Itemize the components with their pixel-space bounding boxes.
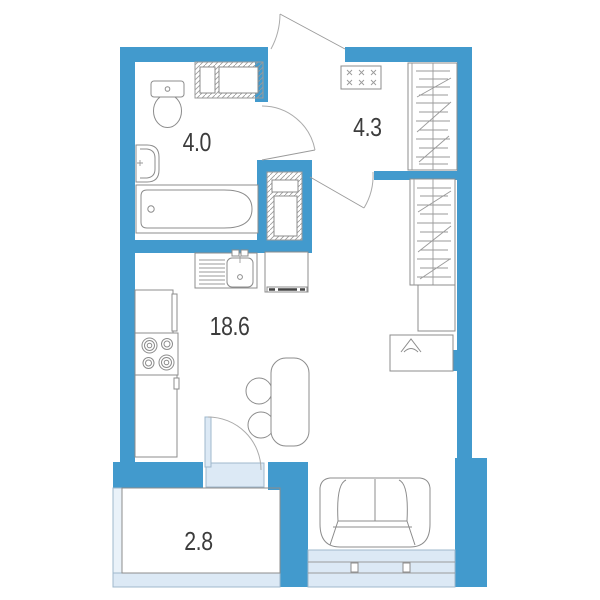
wall-left <box>120 47 135 462</box>
sofa-icon <box>320 478 430 547</box>
wall-shaft-top <box>257 160 312 172</box>
wall-balcony-left <box>113 462 203 488</box>
balcony-area: 2.8 <box>184 527 213 557</box>
hallway-wardrobe-icon <box>408 63 457 170</box>
living-room-door-icon <box>310 172 373 208</box>
stove-icon <box>135 333 178 375</box>
bathroom-door-icon <box>262 106 315 160</box>
room-label-bathroom: 4.0 <box>183 128 212 158</box>
balcony-glazing-left <box>113 488 122 573</box>
window-main <box>308 550 455 587</box>
wall-top-left <box>120 47 268 62</box>
wall-top-right <box>345 47 472 62</box>
kitchen-sink-icon <box>195 250 257 288</box>
chair-icon <box>248 412 274 438</box>
kitchen-counter-icon <box>135 375 179 457</box>
electrical-panel-icon <box>341 66 381 89</box>
window-mullion <box>351 563 358 572</box>
window-mullion <box>403 563 410 572</box>
bathroom-area: 4.0 <box>136 62 263 233</box>
room-label-living: 18.6 <box>210 312 250 342</box>
entrance-door-icon <box>271 14 345 49</box>
washbasin-icon <box>136 145 159 182</box>
living-wardrobe-icon <box>410 179 455 285</box>
room-label-balcony: 2.8 <box>184 527 213 557</box>
ventilation-shaft-icon <box>195 62 263 98</box>
wall-right-bottom-pier <box>455 458 487 587</box>
chair-icon <box>246 378 272 404</box>
bathtub-icon <box>136 185 258 233</box>
hallway-area: 4.3 <box>341 63 457 170</box>
refrigerator-icon <box>265 252 308 292</box>
balcony-glazing-bottom <box>113 573 280 587</box>
dining-table-icon <box>271 358 309 446</box>
kitchen-cabinet-icon <box>135 290 177 333</box>
wall-balcony-pier <box>280 490 308 587</box>
floor-plan-page: 4.0 4.3 <box>0 0 600 600</box>
wall-right <box>457 47 472 458</box>
ventilation-shaft-2-icon <box>267 172 302 240</box>
tv-stand-icon <box>390 335 453 371</box>
wall-balcony-right <box>268 462 308 490</box>
room-label-hallway: 4.3 <box>353 113 382 143</box>
cabinet-icon <box>418 285 455 331</box>
floor-plan: 4.0 4.3 <box>0 0 600 600</box>
toilet-icon <box>151 81 184 128</box>
wall-bathroom-bottom <box>120 240 312 253</box>
wall-right-step <box>453 350 458 371</box>
